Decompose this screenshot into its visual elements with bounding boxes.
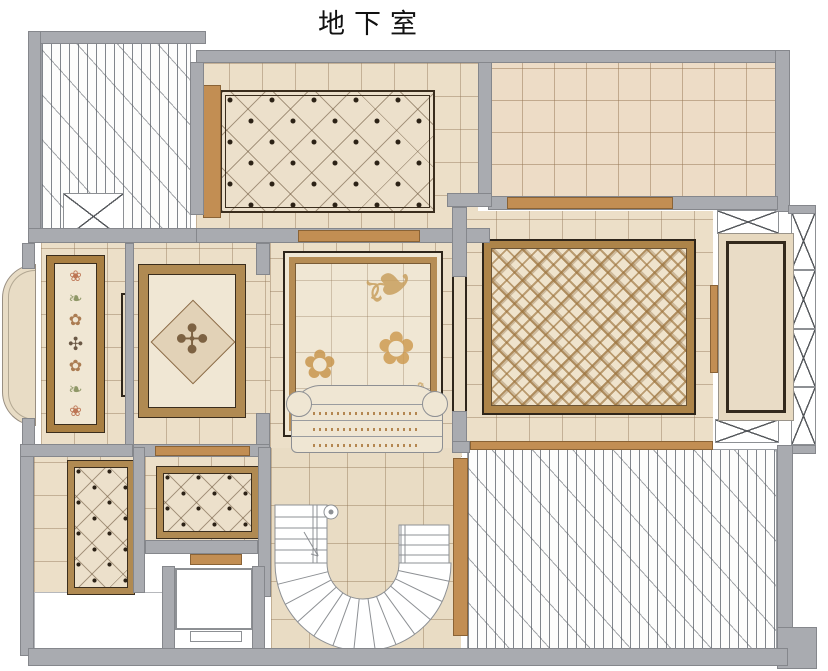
rug-mosaic-runner: ❀ ❧ ✿ ✣ ✿ ❧ ❀ [47, 256, 104, 432]
wall-segment [133, 447, 145, 593]
sofa [291, 385, 443, 453]
mullion-x-cell [791, 387, 816, 445]
window-mullion-column [791, 212, 816, 445]
rug-diamond-small-vertical [68, 461, 134, 594]
sofa-cushion-row [292, 404, 442, 421]
damask-flower-icon: ✿ [303, 345, 337, 385]
door-threshold-bottom-left-top [155, 446, 250, 456]
stone-panel-frame [726, 241, 786, 413]
wall-segment [28, 648, 788, 666]
wall-segment [775, 50, 790, 212]
runner-ornament-icon: ❧ [68, 381, 82, 398]
rug-diamond-small-wide [157, 467, 258, 538]
curved-bay-inner-line [8, 270, 35, 420]
elevator-shaft [175, 568, 253, 630]
wall-segment [28, 228, 204, 243]
wood-strip-left-of-top-middle [203, 85, 221, 218]
rug-diamond-inlay-top [220, 90, 435, 213]
floor-bottom-left-lobby [34, 592, 164, 652]
wall-segment [22, 243, 35, 269]
elevator-door-slot [190, 631, 242, 642]
wall-segment [190, 62, 204, 215]
wall-segment [256, 243, 270, 275]
floor-plan-canvas: 地下室 ❀ ❧ ✿ ✣ ✿ ❧ ❀ ✣ ❧ ✿ ✿ ❧ [0, 0, 828, 671]
medallion-ornament-icon: ✣ [175, 317, 209, 363]
wall-segment [28, 31, 206, 44]
wall-segment [20, 444, 133, 457]
runner-ornament-icon: ✣ [68, 335, 83, 353]
rug-inner-border [225, 95, 430, 208]
sofa-arm-left [286, 391, 312, 417]
door-panel-center-to-lattice [452, 275, 467, 413]
door-threshold-elevator [190, 554, 242, 565]
wall-segment [145, 540, 258, 554]
runner-ornament-icon: ✿ [69, 313, 82, 329]
mullion-x-cell [791, 329, 816, 387]
wall-segment [452, 207, 467, 277]
floor-bottom-right-room [467, 449, 777, 649]
right-bay-stone-panel [718, 233, 794, 421]
rug-lattice [484, 241, 694, 413]
wall-segment [788, 205, 816, 214]
wall-segment [777, 445, 793, 633]
wall-segment [162, 566, 175, 658]
wall-segment [20, 444, 34, 656]
wall-segment [447, 193, 492, 207]
curved-staircase [268, 446, 462, 666]
shaft-box-right-bay-bottom [715, 419, 779, 443]
wall-segment [452, 441, 470, 453]
runner-ornament-icon: ❀ [69, 269, 82, 284]
floor-top-right-room [490, 62, 778, 197]
sofa-cushion-row [292, 420, 442, 437]
runner-ornament-icon: ✿ [69, 359, 82, 375]
wall-segment [28, 31, 41, 243]
wall-segment [252, 566, 265, 658]
rug-medallion: ✣ [139, 265, 245, 417]
wall-segment [125, 243, 134, 448]
door-threshold-middle-top [298, 230, 420, 242]
mullion-x-cell [791, 212, 816, 270]
left-curved-bay [2, 264, 36, 426]
sofa-arm-right [422, 391, 448, 417]
runner-ornament-icon: ❀ [69, 404, 82, 419]
door-threshold-bottom-right-room [470, 441, 713, 450]
mullion-x-cell [791, 270, 816, 328]
shaft-box-right-bay-top [717, 210, 779, 234]
damask-flower-icon: ✿ [377, 325, 416, 371]
wood-strip-hall-right [453, 458, 468, 636]
wall-segment [196, 50, 788, 63]
wood-sliver-right-bay [710, 285, 718, 373]
door-threshold-top-right-top [507, 197, 673, 209]
runner-ornament-icon: ❧ [68, 290, 82, 307]
wall-segment [478, 62, 492, 196]
